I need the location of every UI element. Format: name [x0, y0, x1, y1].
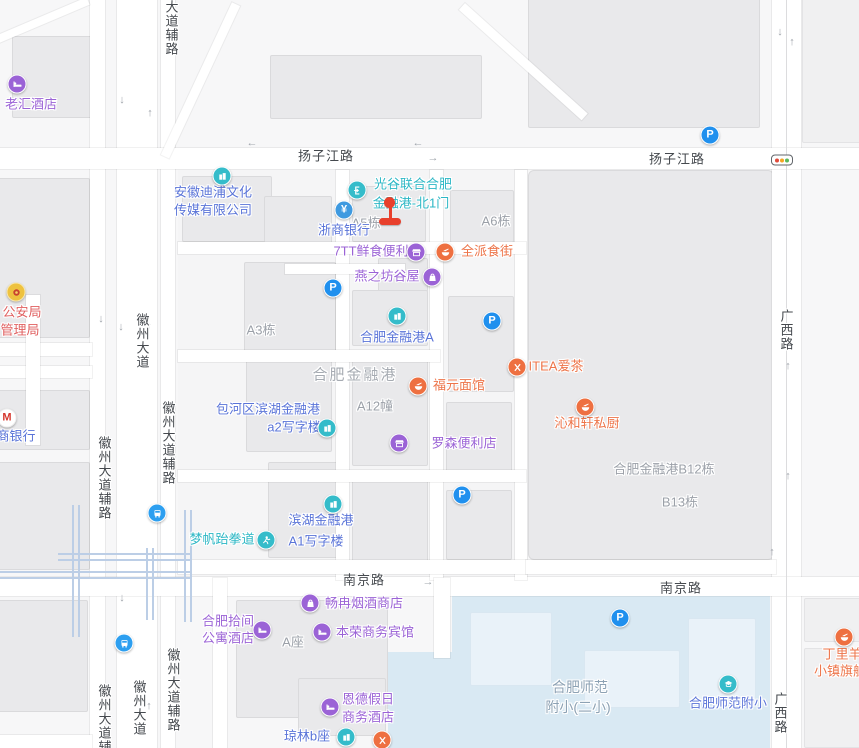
bus-station-icon[interactable] [115, 634, 134, 653]
hotel-bed-icon[interactable] [253, 621, 272, 640]
overpass-line [146, 548, 148, 620]
road [0, 366, 92, 378]
poi-qionglin[interactable]: 琼林b座 [284, 730, 330, 745]
shopping-bag-icon[interactable] [423, 268, 442, 287]
building-icon[interactable] [388, 307, 407, 326]
poi-binhu-1[interactable]: 滨湖金融港 [288, 514, 353, 529]
arrow-down-icon: ↓ [777, 26, 783, 38]
building [802, 0, 859, 143]
label-b12: 合肥金融港B12栋 [613, 463, 714, 478]
road [0, 343, 92, 356]
poi-luosen[interactable]: 罗森便利店 [431, 437, 496, 452]
road-label-huizhou-dadao: 徽州大道 [134, 313, 149, 369]
parking-icon[interactable]: P [324, 279, 343, 298]
overpass-line [0, 577, 190, 579]
poi-dingliyang-2[interactable]: 小镇旗舰 [814, 665, 859, 680]
arrow-down-icon: ↓ [98, 313, 104, 325]
arrow-up-icon: ↑ [789, 36, 795, 48]
road-label-huizhou-dadao: 徽州大道 [131, 680, 146, 736]
poi-shijian-2[interactable]: 公寓酒店 [202, 632, 254, 647]
arrow-up-icon: ↑ [769, 546, 775, 558]
food-bowl-icon[interactable] [436, 243, 455, 262]
hotel-bed-icon[interactable] [8, 75, 27, 94]
marker-base [379, 218, 401, 225]
road-huizhou-fulu-east [161, 0, 175, 748]
road [213, 578, 227, 748]
poi-zhaoshang-bank[interactable]: 商银行 [0, 430, 36, 445]
poi-laohui-hotel[interactable]: 老汇酒店 [5, 98, 57, 113]
label-school-2: 附小(二小) [545, 699, 610, 715]
map-canvas[interactable]: ↓ ↑ ↓ ↓ ↑ ↓ ↑ ← ← → → ↓ ↑ ↑ ↑ ↑ 扬子江路 扬子江… [0, 0, 859, 748]
poi-mengfan[interactable]: 梦帆跆拳道 [189, 533, 254, 548]
arrow-down-icon: ↓ [118, 321, 124, 333]
poi-gongan-1[interactable]: 公安局 [2, 306, 41, 321]
road-centerline [786, 0, 787, 748]
utensils-icon[interactable] [508, 358, 527, 377]
hotel-bed-icon[interactable] [321, 698, 340, 717]
parking-icon[interactable]: P [453, 486, 472, 505]
poi-guanggu-gate-1[interactable]: 光谷联合合肥 [374, 178, 452, 193]
label-azuo: A座 [282, 636, 304, 651]
poi-gongan-2[interactable]: 管理局 [0, 324, 39, 339]
road-huizhou-fulu-west [90, 0, 105, 748]
food-bowl-icon[interactable] [835, 628, 854, 647]
campus-road [178, 470, 526, 482]
parking-icon[interactable]: P [483, 312, 502, 331]
store-icon[interactable] [390, 434, 409, 453]
poi-binhu-2[interactable]: A1写字楼 [289, 535, 344, 550]
road-label-huizhou-fulu: 徽州大道辅路 [96, 436, 111, 520]
arrow-down-icon: ↓ [119, 94, 125, 106]
road-label-huizhou-fulu: 徽州大道辅路 [165, 648, 180, 732]
arrow-up-icon: ↑ [785, 360, 791, 372]
road [0, 735, 92, 748]
poi-zheshang-bank[interactable]: 浙商银行 [318, 224, 370, 239]
taekwondo-icon[interactable] [257, 531, 276, 550]
poi-andipu-2[interactable]: 传媒有限公司 [174, 204, 252, 219]
bus-station-icon[interactable] [148, 504, 167, 523]
building-zheshang [264, 196, 332, 246]
food-bowl-icon[interactable] [576, 398, 595, 417]
arrow-left-icon: ← [413, 137, 424, 149]
label-b13: B13栋 [662, 496, 698, 511]
arrow-right-icon: → [423, 576, 434, 588]
label-a12: A12幢 [357, 400, 393, 415]
overpass-line [58, 553, 190, 555]
poi-jinronggang-a[interactable]: 合肥金融港A [360, 331, 434, 346]
label-jinronggang-area: 合肥金融港 [312, 366, 397, 383]
parking-icon[interactable]: P [611, 609, 630, 628]
building-a3 [244, 262, 336, 352]
poi-7tt[interactable]: 7TT鲜食便利 [333, 245, 408, 260]
school-building [470, 612, 552, 686]
poi-fuyuan[interactable]: 福元面馆 [433, 379, 485, 394]
poi-quanpai[interactable]: 全派食街 [461, 245, 513, 260]
overpass-line [0, 571, 190, 573]
road [526, 560, 776, 574]
police-badge-icon[interactable] [7, 283, 26, 302]
building-icon[interactable] [337, 728, 356, 747]
destination-marker[interactable] [379, 197, 401, 227]
shopping-bag-icon[interactable] [301, 594, 320, 613]
school-area-west [388, 652, 458, 748]
building [0, 600, 88, 712]
building [270, 55, 482, 119]
overpass-line [58, 559, 190, 561]
arrow-right-icon: → [428, 152, 439, 164]
road-label-huizhou-fulu: 徽州大道辅路 [96, 684, 111, 748]
road-label-guangxi: 广西路 [772, 692, 787, 734]
parking-icon[interactable]: P [701, 126, 720, 145]
arrow-up-icon: ↑ [785, 470, 791, 482]
traffic-light-icon [771, 155, 793, 166]
road-label-dadao-fulu: 大道辅路 [163, 0, 178, 56]
company-icon[interactable] [213, 167, 232, 186]
arrow-left-icon: ← [247, 137, 258, 149]
hotel-bed-icon[interactable] [313, 623, 332, 642]
poi-shifan-fuxiao[interactable]: 合肥师范附小 [689, 697, 767, 712]
bank-yuan-icon[interactable]: ¥ [335, 201, 354, 220]
overpass-line [184, 510, 186, 622]
arrow-up-icon: ↑ [147, 107, 153, 119]
poi-benrong[interactable]: 本荣商务宾馆 [336, 626, 414, 641]
poi-itea[interactable]: ITEA爱茶 [529, 360, 584, 375]
poi-baohe-2[interactable]: a2写字楼 [267, 421, 320, 436]
poi-qinhexuan[interactable]: 沁和轩私厨 [554, 417, 619, 432]
utensils-icon[interactable] [373, 731, 392, 748]
arrow-up-icon: ↑ [146, 700, 152, 712]
poi-ende-1[interactable]: 恩德假日 [342, 693, 394, 708]
road [434, 578, 450, 658]
poi-dingliyang-1[interactable]: 丁里羊 [822, 648, 859, 663]
arrow-down-icon: ↓ [119, 592, 125, 604]
road-label-huizhou-fulu: 徽州大道辅路 [160, 401, 175, 485]
road-label-nanjing: 南京路 [343, 574, 385, 589]
road-label-yangzijiang: 扬子江路 [298, 150, 354, 165]
entrance-icon[interactable] [348, 181, 367, 200]
road-label-guangxi: 广西路 [778, 309, 793, 351]
school-icon[interactable] [719, 675, 738, 694]
poi-changran[interactable]: 畅冉烟酒商店 [325, 597, 403, 612]
road-label-nanjing: 南京路 [660, 582, 702, 597]
poi-ende-2[interactable]: 商务酒店 [342, 711, 394, 726]
overpass-line [152, 548, 154, 620]
campus-road [430, 170, 443, 580]
road-label-yangzijiang: 扬子江路 [649, 153, 705, 168]
building-icon[interactable] [318, 419, 337, 438]
building-a1 [352, 476, 428, 562]
food-bowl-icon[interactable] [409, 377, 428, 396]
label-school-1: 合肥师范 [552, 679, 608, 695]
label-a3: A3栋 [247, 324, 276, 339]
poi-shijian-1[interactable]: 合肥拾间 [202, 615, 254, 630]
store-icon[interactable] [407, 243, 426, 262]
campus-road [178, 350, 440, 362]
overpass-line [190, 510, 192, 622]
poi-yanzhifang[interactable]: 燕之坊谷屋 [354, 270, 419, 285]
poi-baohe-1[interactable]: 包河区滨湖金融港 [216, 403, 320, 418]
building [528, 0, 760, 128]
building-icon[interactable] [324, 495, 343, 514]
label-a6: A6栋 [482, 215, 511, 230]
poi-andipu-1[interactable]: 安徽迪浦文化 [174, 186, 252, 201]
